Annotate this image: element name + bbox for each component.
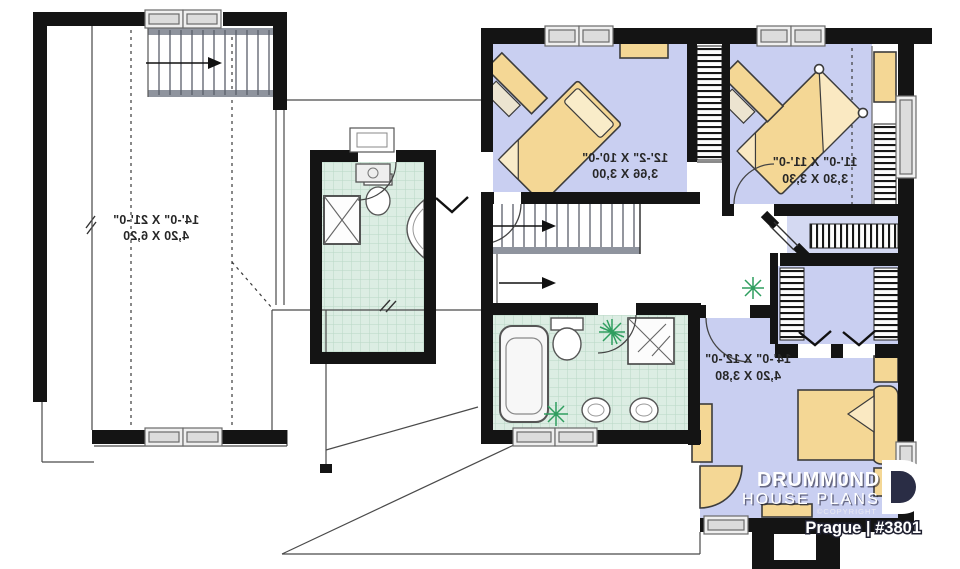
bedroom1-closet-shelves [697, 46, 722, 160]
sink-icon [582, 398, 610, 422]
floorplan-page: 14'-0" X 21'-0" 4,20 X 6,20 12'-2" X 10'… [0, 0, 960, 569]
bed-icon [798, 390, 874, 460]
window-icon [513, 428, 597, 446]
upper-closet-shelves [810, 224, 898, 248]
room-dimension-imperial: 14'-0" X 12'-0" [705, 352, 791, 366]
copyright-text: ©COPYRIGHT [817, 507, 877, 516]
plan-title: Prague | #3801 [805, 519, 921, 537]
headboard-icon [872, 386, 898, 464]
floorplan-drawing: 14'-0" X 21'-0" 4,20 X 6,20 12'-2" X 10'… [0, 0, 960, 569]
toilet-icon [553, 328, 581, 360]
room-dimension-imperial: 14'-0" X 21'-0" [113, 213, 199, 227]
window-icon [896, 96, 916, 178]
window-icon [145, 428, 222, 446]
doorway-chevron [436, 197, 468, 212]
room-dimension-metric: 4,20 X 3,80 [715, 369, 781, 383]
window-icon [145, 10, 221, 28]
room-label-bonus: 14'-0" X 21'-0" 4,20 X 6,20 [113, 213, 199, 243]
lower-closet-shelves-right [874, 268, 898, 340]
washer-icon [356, 164, 390, 182]
bedroom2-nook-shelves [874, 124, 896, 212]
laundry-niche [350, 128, 394, 152]
window-icon [757, 26, 825, 46]
room-dimension-imperial: 11'-0" X 11'-0" [773, 155, 858, 169]
stair-arrow-icon [542, 220, 556, 232]
staircase-center [489, 204, 640, 308]
brand-subname: HOUSE PLANS [742, 491, 880, 508]
shelf-icon [620, 42, 668, 58]
brand-name: DRUMM0ND [757, 469, 880, 491]
stair-arrow-icon [208, 57, 222, 69]
stair-arrow-icon [542, 277, 556, 289]
plant-icon [742, 277, 764, 299]
nightstand-icon [874, 356, 898, 382]
drummond-d-logo-icon [882, 460, 929, 514]
staircase-left [146, 28, 274, 97]
room-dimension-metric: 3,66 X 3,00 [592, 167, 658, 181]
window-icon [704, 516, 748, 534]
sink-icon [630, 398, 658, 422]
roof-post [320, 464, 332, 473]
toilet-icon [366, 187, 390, 215]
lower-closet-shelves-left [780, 268, 804, 340]
dresser-icon [874, 52, 896, 102]
window-icon [545, 26, 613, 46]
room-dimension-imperial: 12'-2" X 10'-0" [582, 151, 668, 165]
room-dimension-metric: 4,20 X 6,20 [123, 229, 189, 243]
room-dimension-metric: 3,30 X 3,30 [782, 172, 848, 186]
porch-inner [774, 534, 816, 560]
